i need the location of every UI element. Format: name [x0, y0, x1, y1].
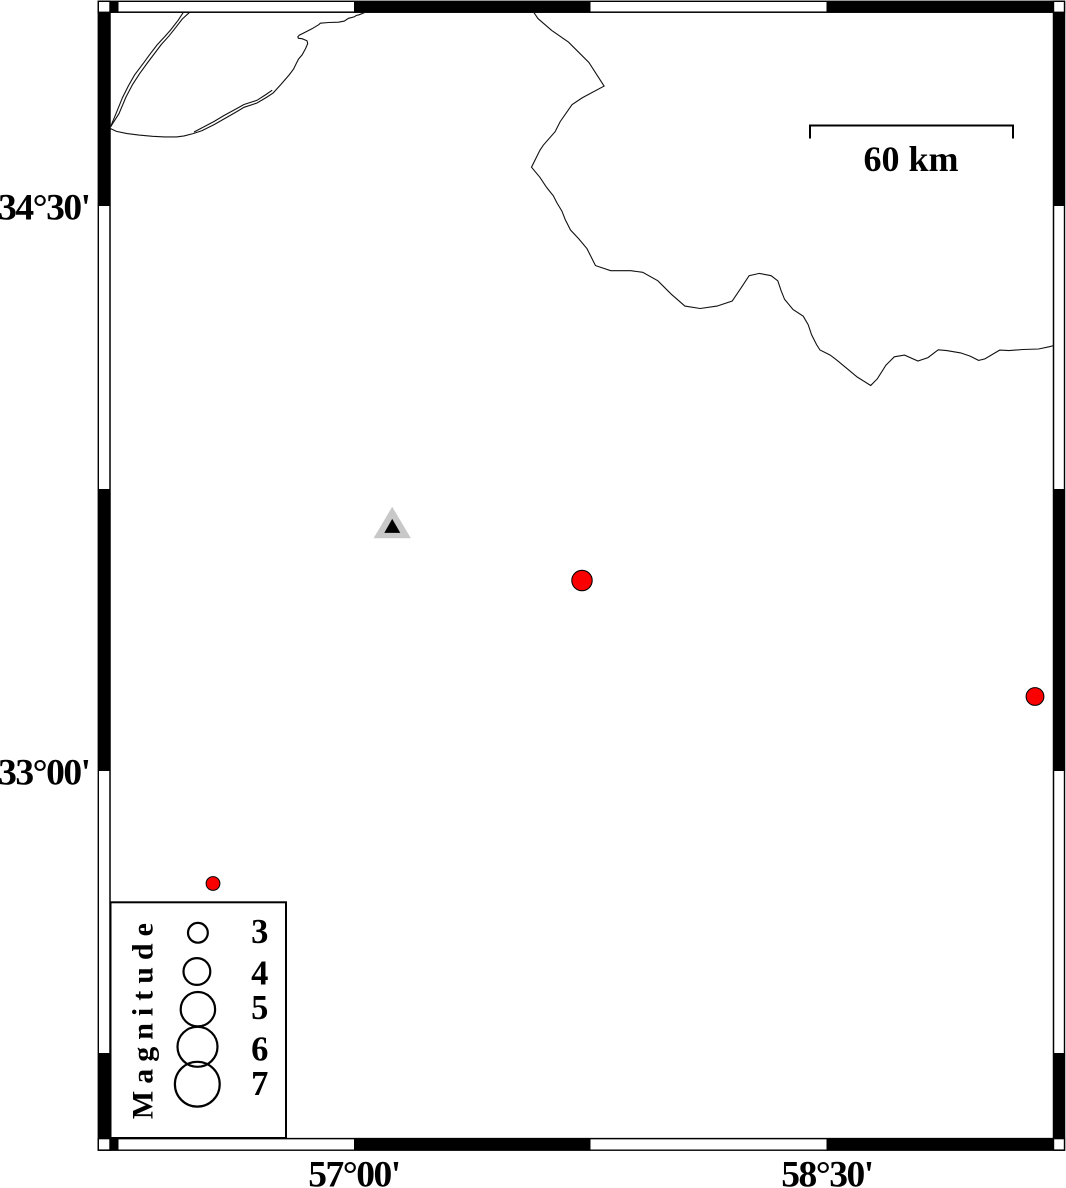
svg-text:4: 4	[251, 954, 268, 992]
svg-text:6: 6	[251, 1030, 268, 1068]
svg-text:7: 7	[251, 1065, 268, 1103]
svg-text:5: 5	[251, 989, 268, 1027]
svg-text:57°00': 57°00'	[308, 1155, 399, 1188]
svg-text:3: 3	[251, 913, 268, 951]
svg-text:60 km: 60 km	[863, 139, 958, 179]
svg-text:58°30': 58°30'	[781, 1155, 872, 1188]
svg-text:34°30': 34°30'	[0, 188, 90, 229]
svg-text:Magnitude: Magnitude	[126, 916, 159, 1119]
svg-text:33°00': 33°00'	[0, 753, 90, 794]
